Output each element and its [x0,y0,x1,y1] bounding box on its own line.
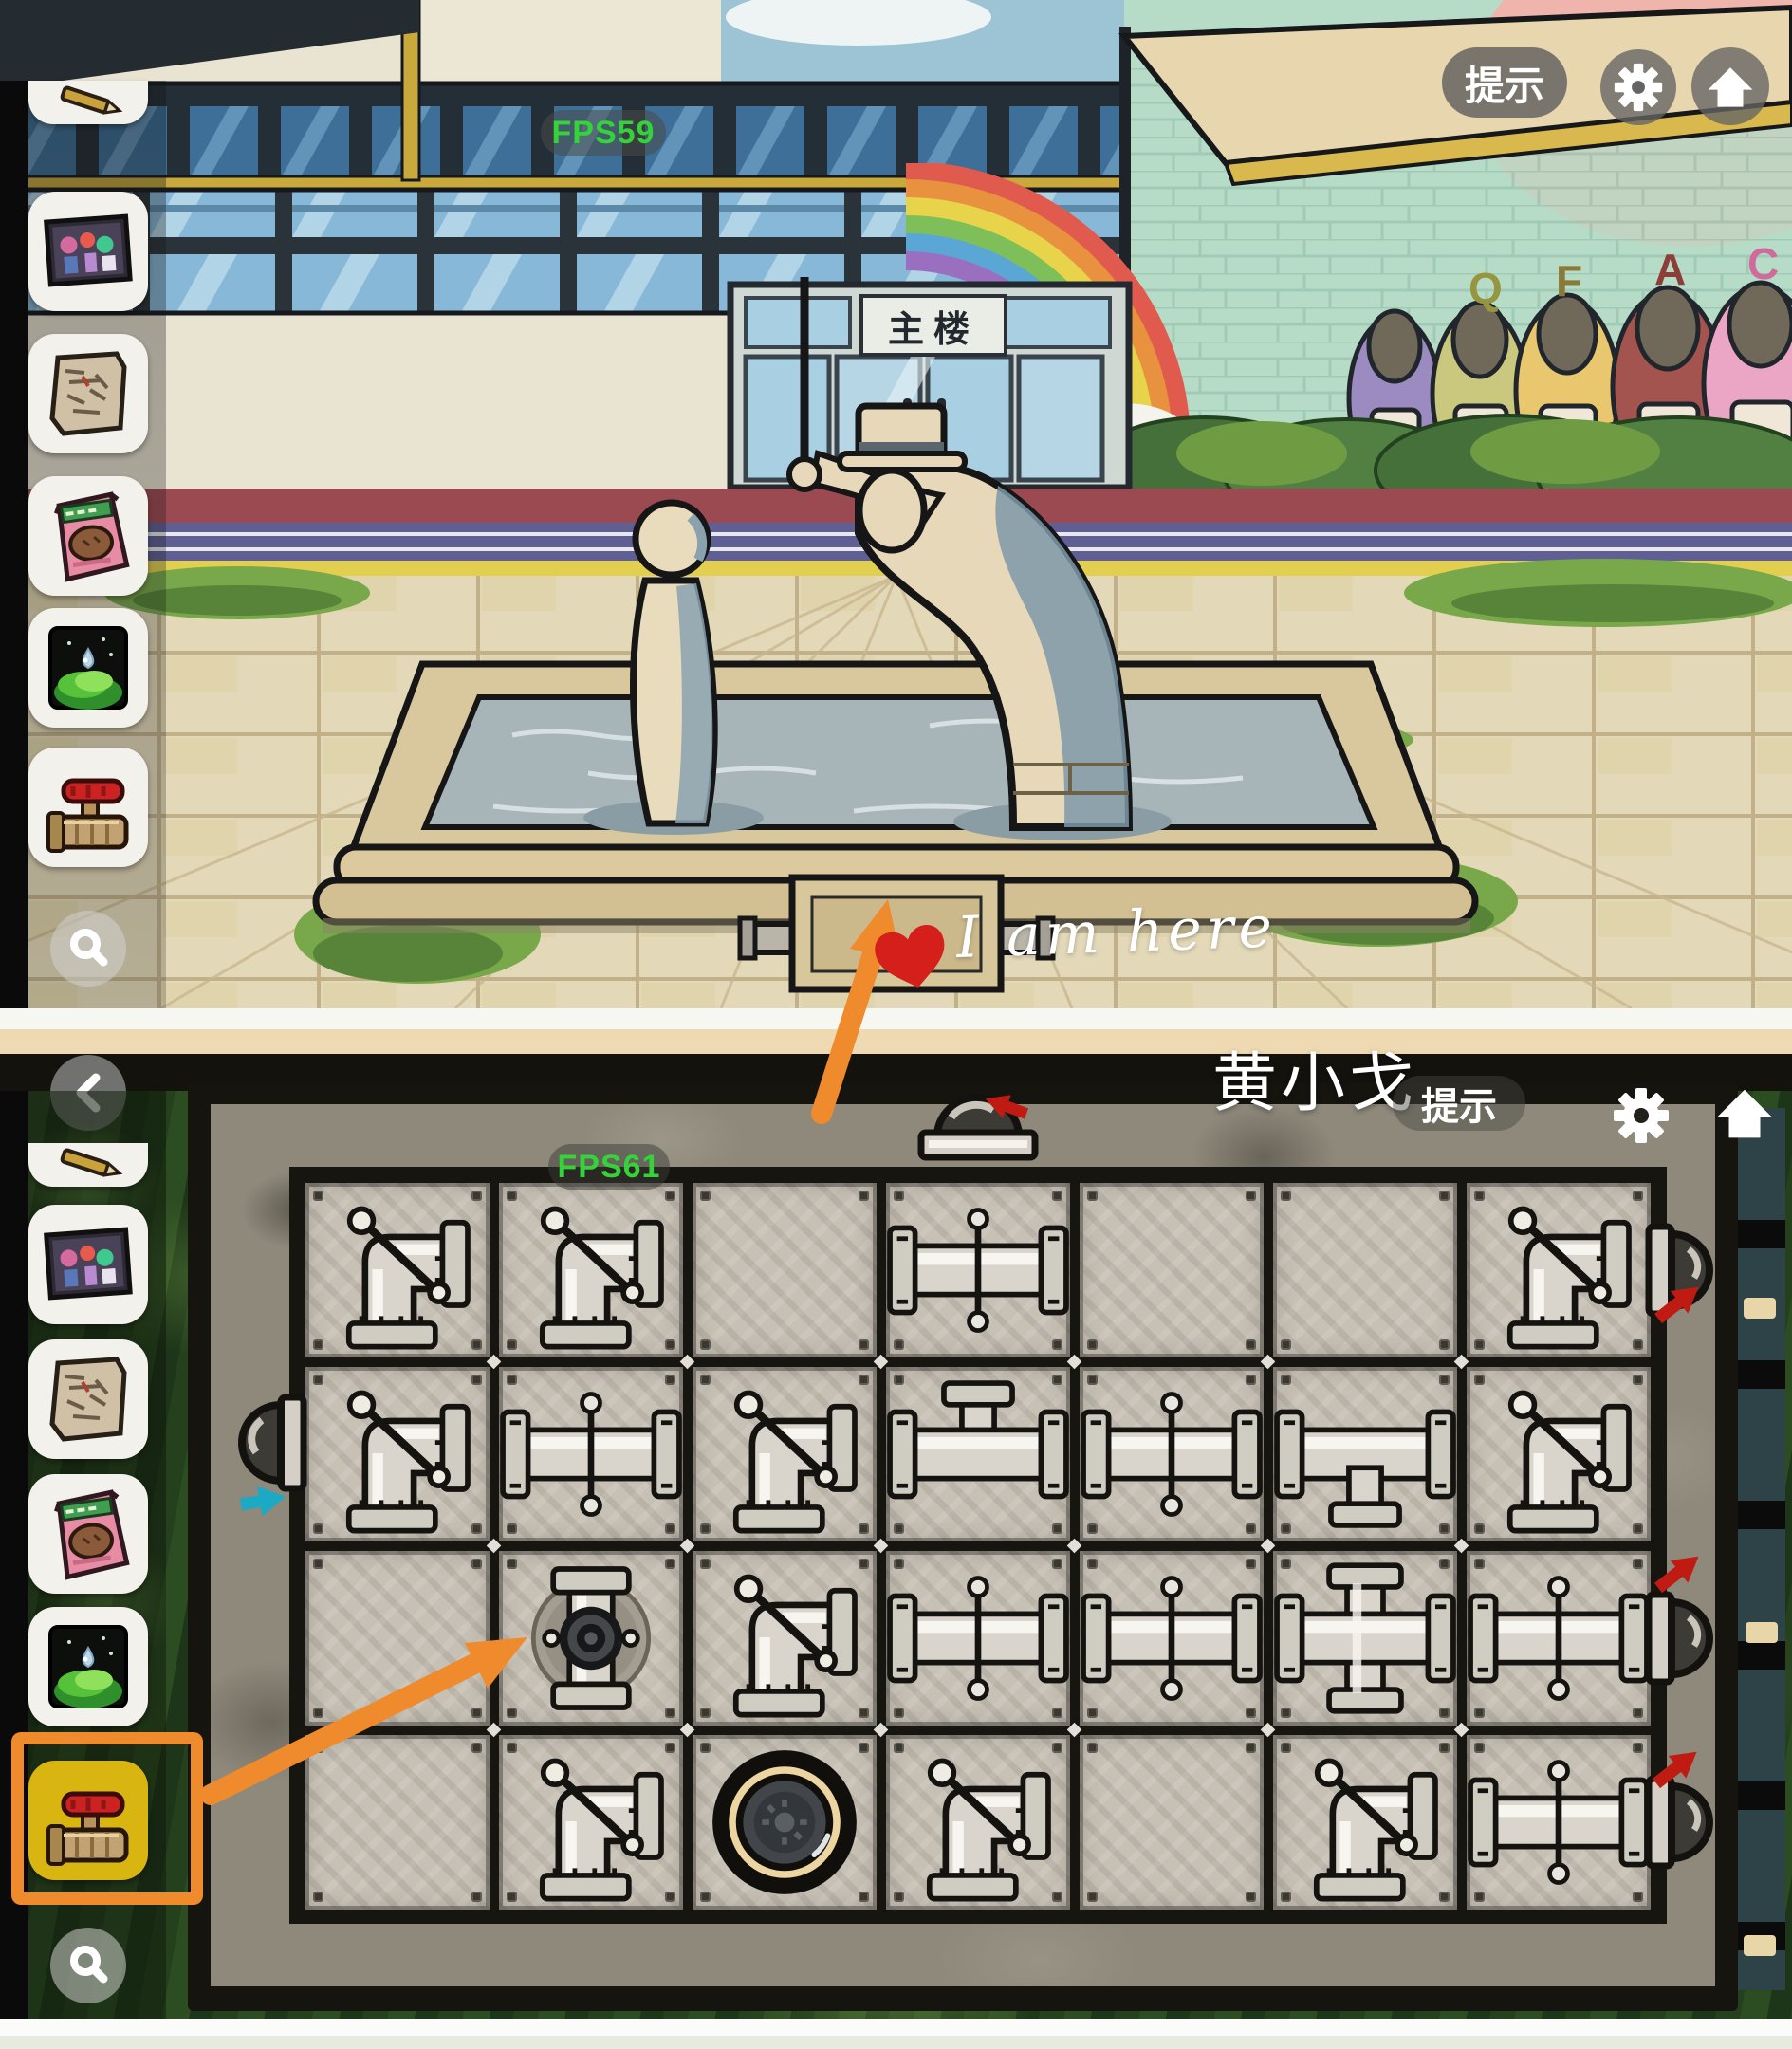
pipe-piece-elbow[interactable] [693,1367,877,1541]
pipe-piece-cross[interactable] [1273,1551,1457,1726]
pipe-piece-h[interactable] [1080,1551,1264,1726]
zoom-search-button-top[interactable] [50,911,126,987]
bottom-strip [0,2019,1792,2036]
pencil-item[interactable] [28,1143,148,1187]
settings-button-top[interactable] [1600,49,1676,125]
child-statue [634,503,715,823]
gear-icon [1613,1087,1670,1144]
screen-edge [0,81,28,1008]
fps-counter-bottom: FPS61 [548,1144,670,1190]
pipe-piece-elbow[interactable] [693,1551,877,1726]
drain-channel [1738,1108,1785,1990]
pipe-piece-elbow[interactable] [499,1183,683,1357]
mural-letter: A [1654,245,1686,294]
screw [313,1707,323,1718]
screw [313,1743,323,1753]
empty-plate [1080,1183,1264,1357]
empty-plate [305,1735,490,1910]
channel-highlight [1744,1298,1776,1319]
photo-item[interactable] [28,192,148,311]
channel-highlight [1744,1935,1776,1956]
pipe-piece-elbow[interactable] [305,1183,490,1357]
game-screenshot: Q F A C [0,0,1792,2049]
home-button-bottom[interactable] [1713,1081,1776,1144]
screw [1246,1743,1256,1753]
pipe-piece-h[interactable] [886,1551,1070,1726]
screw [1246,1339,1256,1350]
screw [1087,1743,1098,1753]
screw [471,1743,482,1753]
mural-letter: C [1747,239,1779,288]
hint-label: 提示 [1465,54,1544,112]
pipe-piece-elbow[interactable] [1467,1367,1651,1541]
pipe-piece-elbow[interactable] [305,1367,490,1541]
search-icon [66,1942,110,1990]
scroll-item[interactable] [28,334,148,453]
zoom-search-button-bottom[interactable] [50,1928,126,2003]
search-icon [66,925,110,973]
screw [1281,1191,1291,1201]
photo-item[interactable] [28,1205,148,1324]
screw [313,1559,323,1569]
scroll-item[interactable] [28,1339,148,1459]
pipe-piece-h[interactable] [1467,1735,1651,1910]
fps-value: FPS61 [558,1149,661,1186]
door-sign: 主楼 [859,294,1007,357]
empty-plate [1080,1735,1264,1910]
home-button-top[interactable] [1691,47,1769,125]
pipe-piece-elbow[interactable] [1467,1183,1651,1357]
pipe-piece-elbow[interactable] [886,1735,1070,1910]
pipe-piece-h[interactable] [886,1183,1070,1357]
pipe-piece-elbow[interactable] [499,1735,683,1910]
screw [313,1892,323,1902]
pipe-piece-h[interactable] [499,1367,683,1541]
pipe-grid [301,1178,1655,1914]
pipe-piece-h[interactable] [1467,1551,1651,1726]
hint-button-top[interactable]: 提示 [1442,47,1567,118]
valve-highlight-box [11,1732,203,1905]
pipe-piece-valve_socket[interactable] [499,1551,683,1726]
valve-item[interactable] [28,748,148,867]
screw [859,1339,869,1350]
screw [1439,1339,1450,1350]
screw [859,1191,869,1201]
fps-value: FPS59 [552,115,656,152]
mural-letter: Q [1469,264,1503,313]
snack-item[interactable] [28,1474,148,1594]
hint-button-bottom[interactable]: 提示 [1393,1076,1525,1131]
courtyard-illustration: Q F A C [0,0,1792,1008]
empty-plate [693,1183,877,1357]
screw [1281,1339,1291,1350]
pipe-piece-elbow[interactable] [1273,1735,1457,1910]
pipe-piece-tee_up[interactable] [886,1367,1070,1541]
pipe-piece-h[interactable] [1080,1367,1264,1541]
pipe-piece-drain[interactable] [693,1735,877,1910]
screw [700,1339,711,1350]
screw [1246,1191,1256,1201]
empty-plate [1273,1183,1457,1357]
bottom-strip-pale [0,2036,1792,2049]
watermark-name: 黄小戈 [1212,1030,1417,1124]
moss-item[interactable] [28,608,148,728]
pipe-piece-tee_down[interactable] [1273,1367,1457,1541]
fps-counter-top: FPS59 [541,110,666,156]
inventory-sidebar-top [28,81,166,1008]
gear-icon [1614,63,1663,112]
empty-plate [305,1551,490,1726]
settings-button-bottom[interactable] [1613,1087,1670,1144]
mural-letter: F [1556,256,1582,305]
screw [471,1707,482,1718]
screw [1246,1892,1256,1902]
screw [700,1191,711,1201]
pencil-item[interactable] [28,81,148,124]
snack-item[interactable] [28,476,148,596]
moss-item[interactable] [28,1607,148,1726]
courtyard-scene: Q F A C [0,0,1792,1008]
screw [1087,1892,1098,1902]
door-sign-text: 主楼 [888,300,979,352]
home-icon [1705,61,1756,112]
screw [1439,1191,1450,1201]
home-icon [1713,1081,1776,1144]
channel-highlight [1746,1622,1778,1643]
screw [1087,1339,1098,1350]
screw [471,1559,482,1569]
hint-label: 提示 [1421,1076,1497,1131]
panel-divider [0,1008,1792,1029]
screw [1087,1191,1098,1201]
screw [471,1892,482,1902]
